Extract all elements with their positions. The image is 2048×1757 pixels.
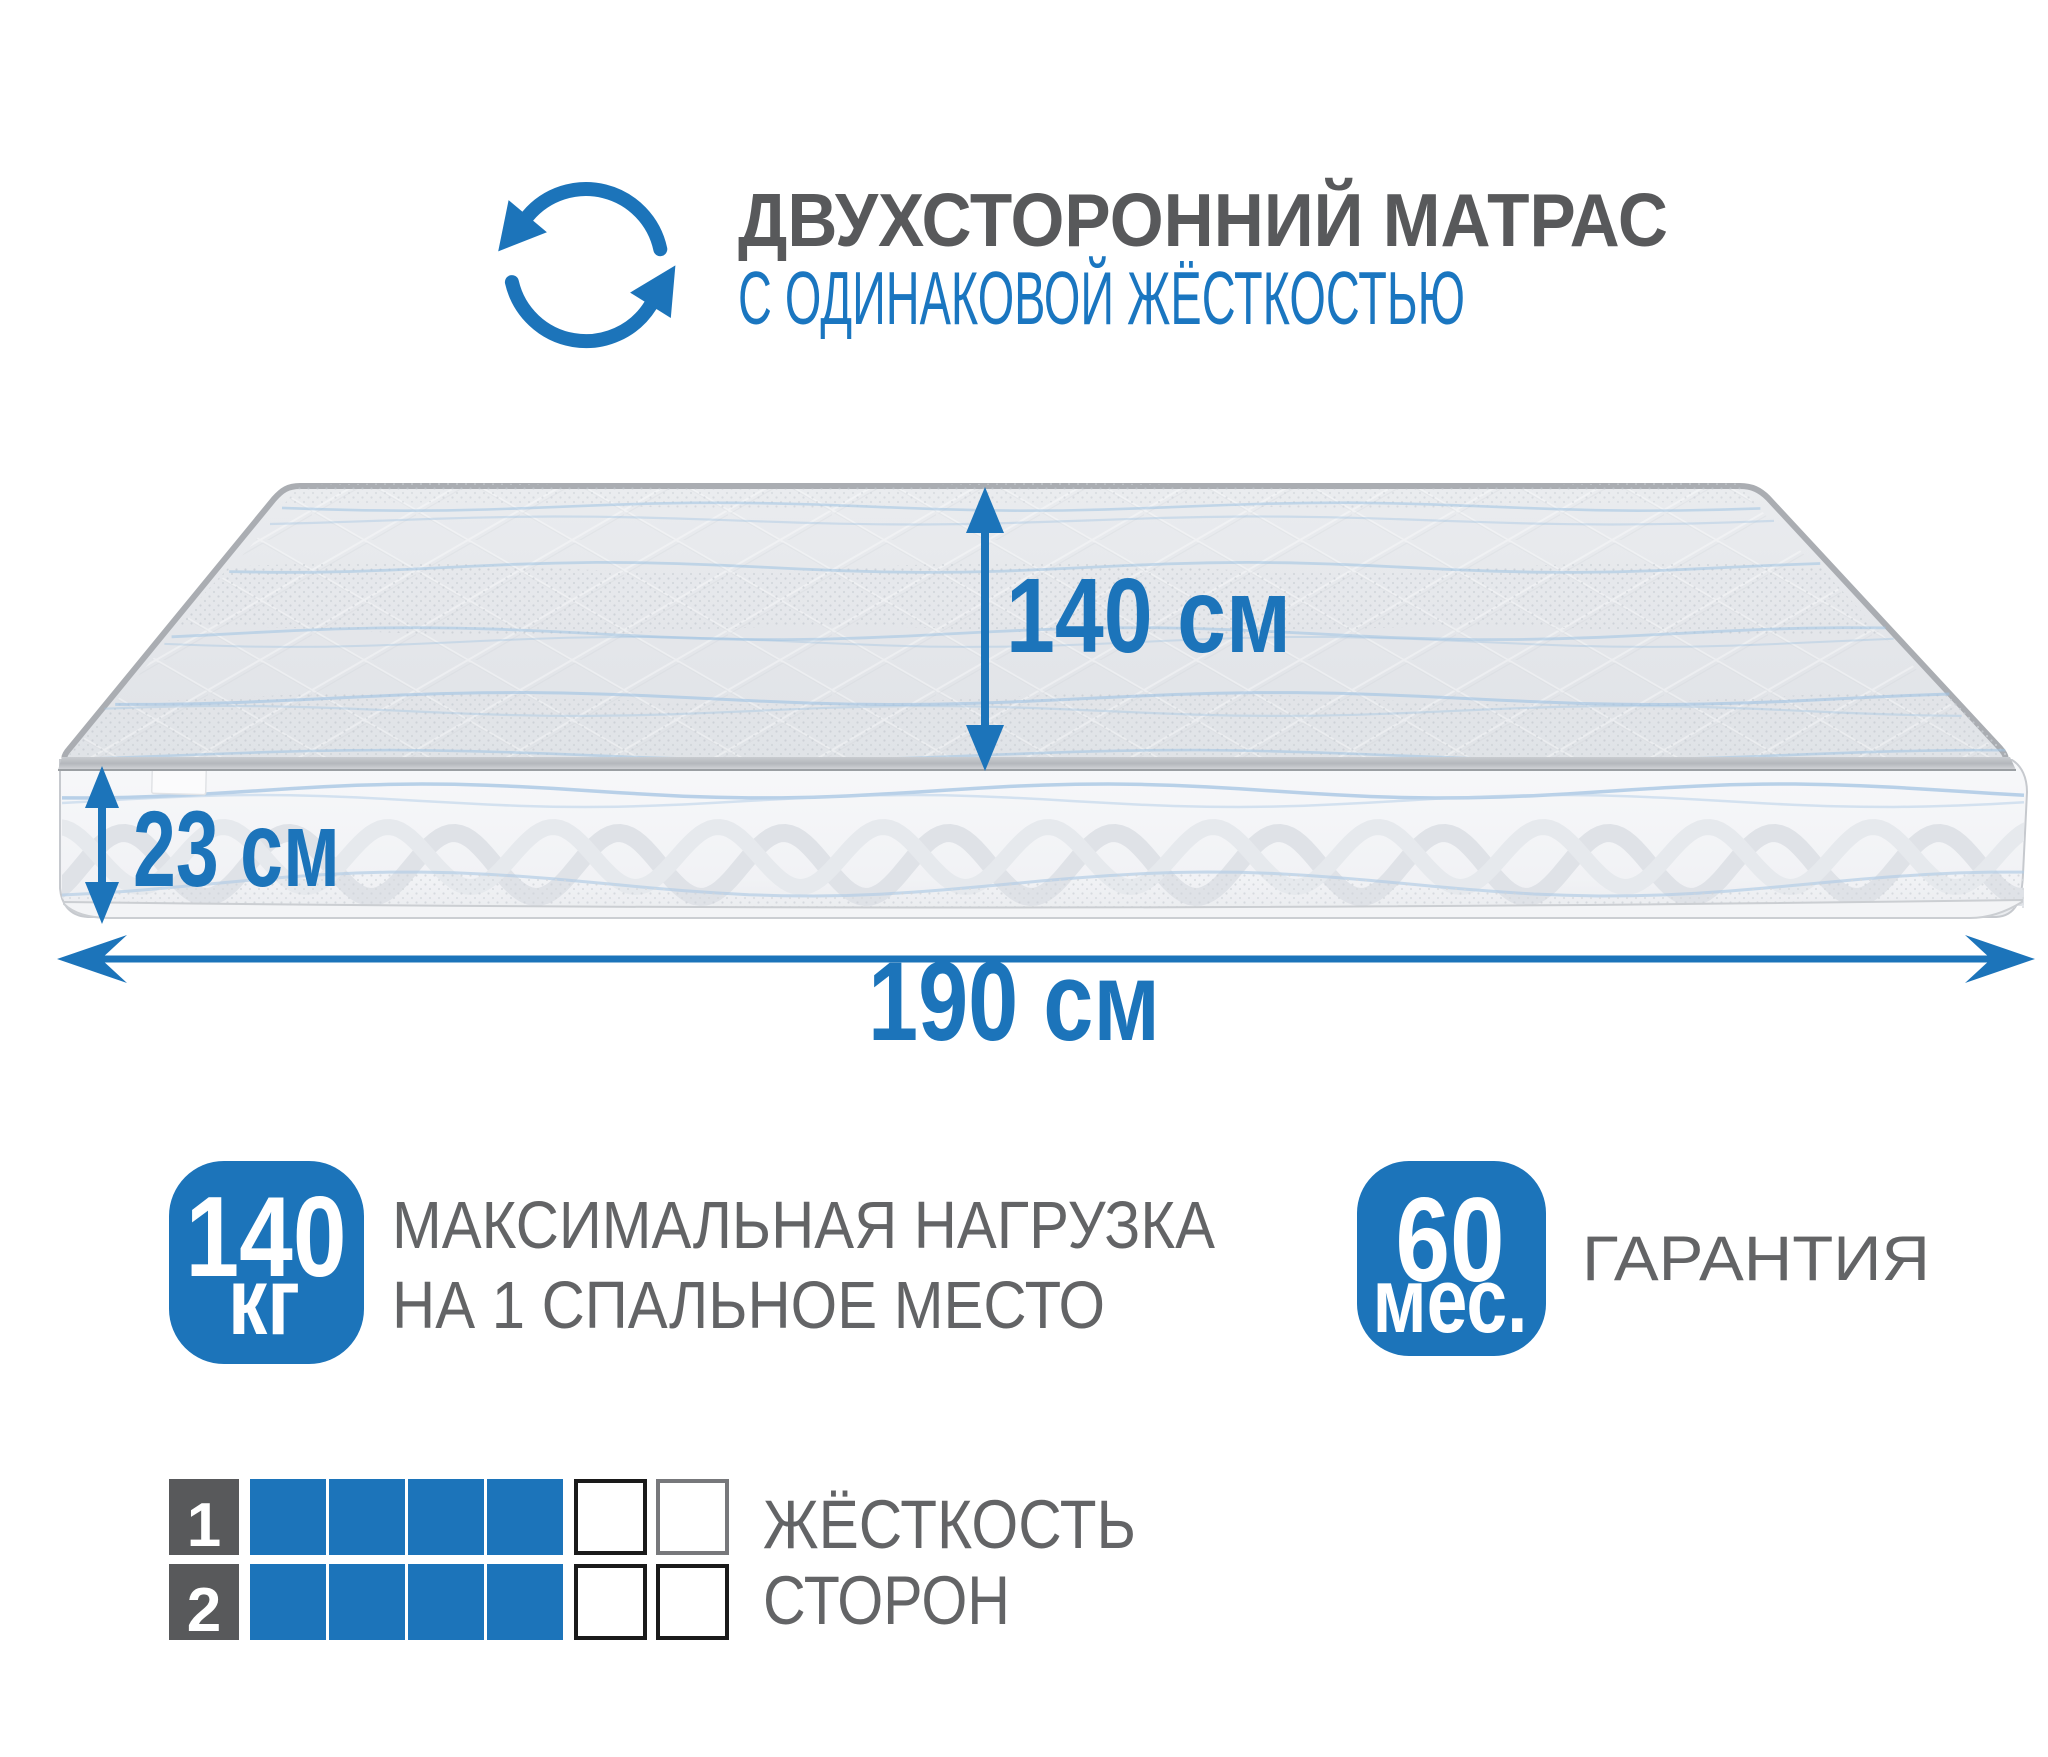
svg-text:С ОДИНАКОВОЙ ЖЁСТКОСТЬЮ: С ОДИНАКОВОЙ ЖЁСТКОСТЬЮ [738, 256, 1465, 340]
svg-text:СТОРОН: СТОРОН [763, 1562, 1010, 1639]
svg-text:190 см: 190 см [868, 939, 1160, 1064]
svg-text:кг: кг [228, 1248, 300, 1355]
svg-text:ГАРАНТИЯ: ГАРАНТИЯ [1582, 1224, 1930, 1294]
svg-text:МАКСИМАЛЬНАЯ НАГРУЗКА: МАКСИМАЛЬНАЯ НАГРУЗКА [392, 1188, 1215, 1263]
svg-text:мес.: мес. [1373, 1250, 1528, 1352]
svg-text:ЖЁСТКОСТЬ: ЖЁСТКОСТЬ [763, 1486, 1136, 1563]
svg-text:140 см: 140 см [1006, 557, 1291, 675]
svg-text:1: 1 [187, 1491, 221, 1560]
svg-text:НА 1 СПАЛЬНОЕ МЕСТО: НА 1 СПАЛЬНОЕ МЕСТО [392, 1268, 1105, 1343]
svg-text:ДВУХСТОРОННИЙ МАТРАС: ДВУХСТОРОННИЙ МАТРАС [738, 178, 1668, 262]
svg-text:23 см: 23 см [133, 788, 340, 909]
svg-text:2: 2 [187, 1576, 221, 1645]
